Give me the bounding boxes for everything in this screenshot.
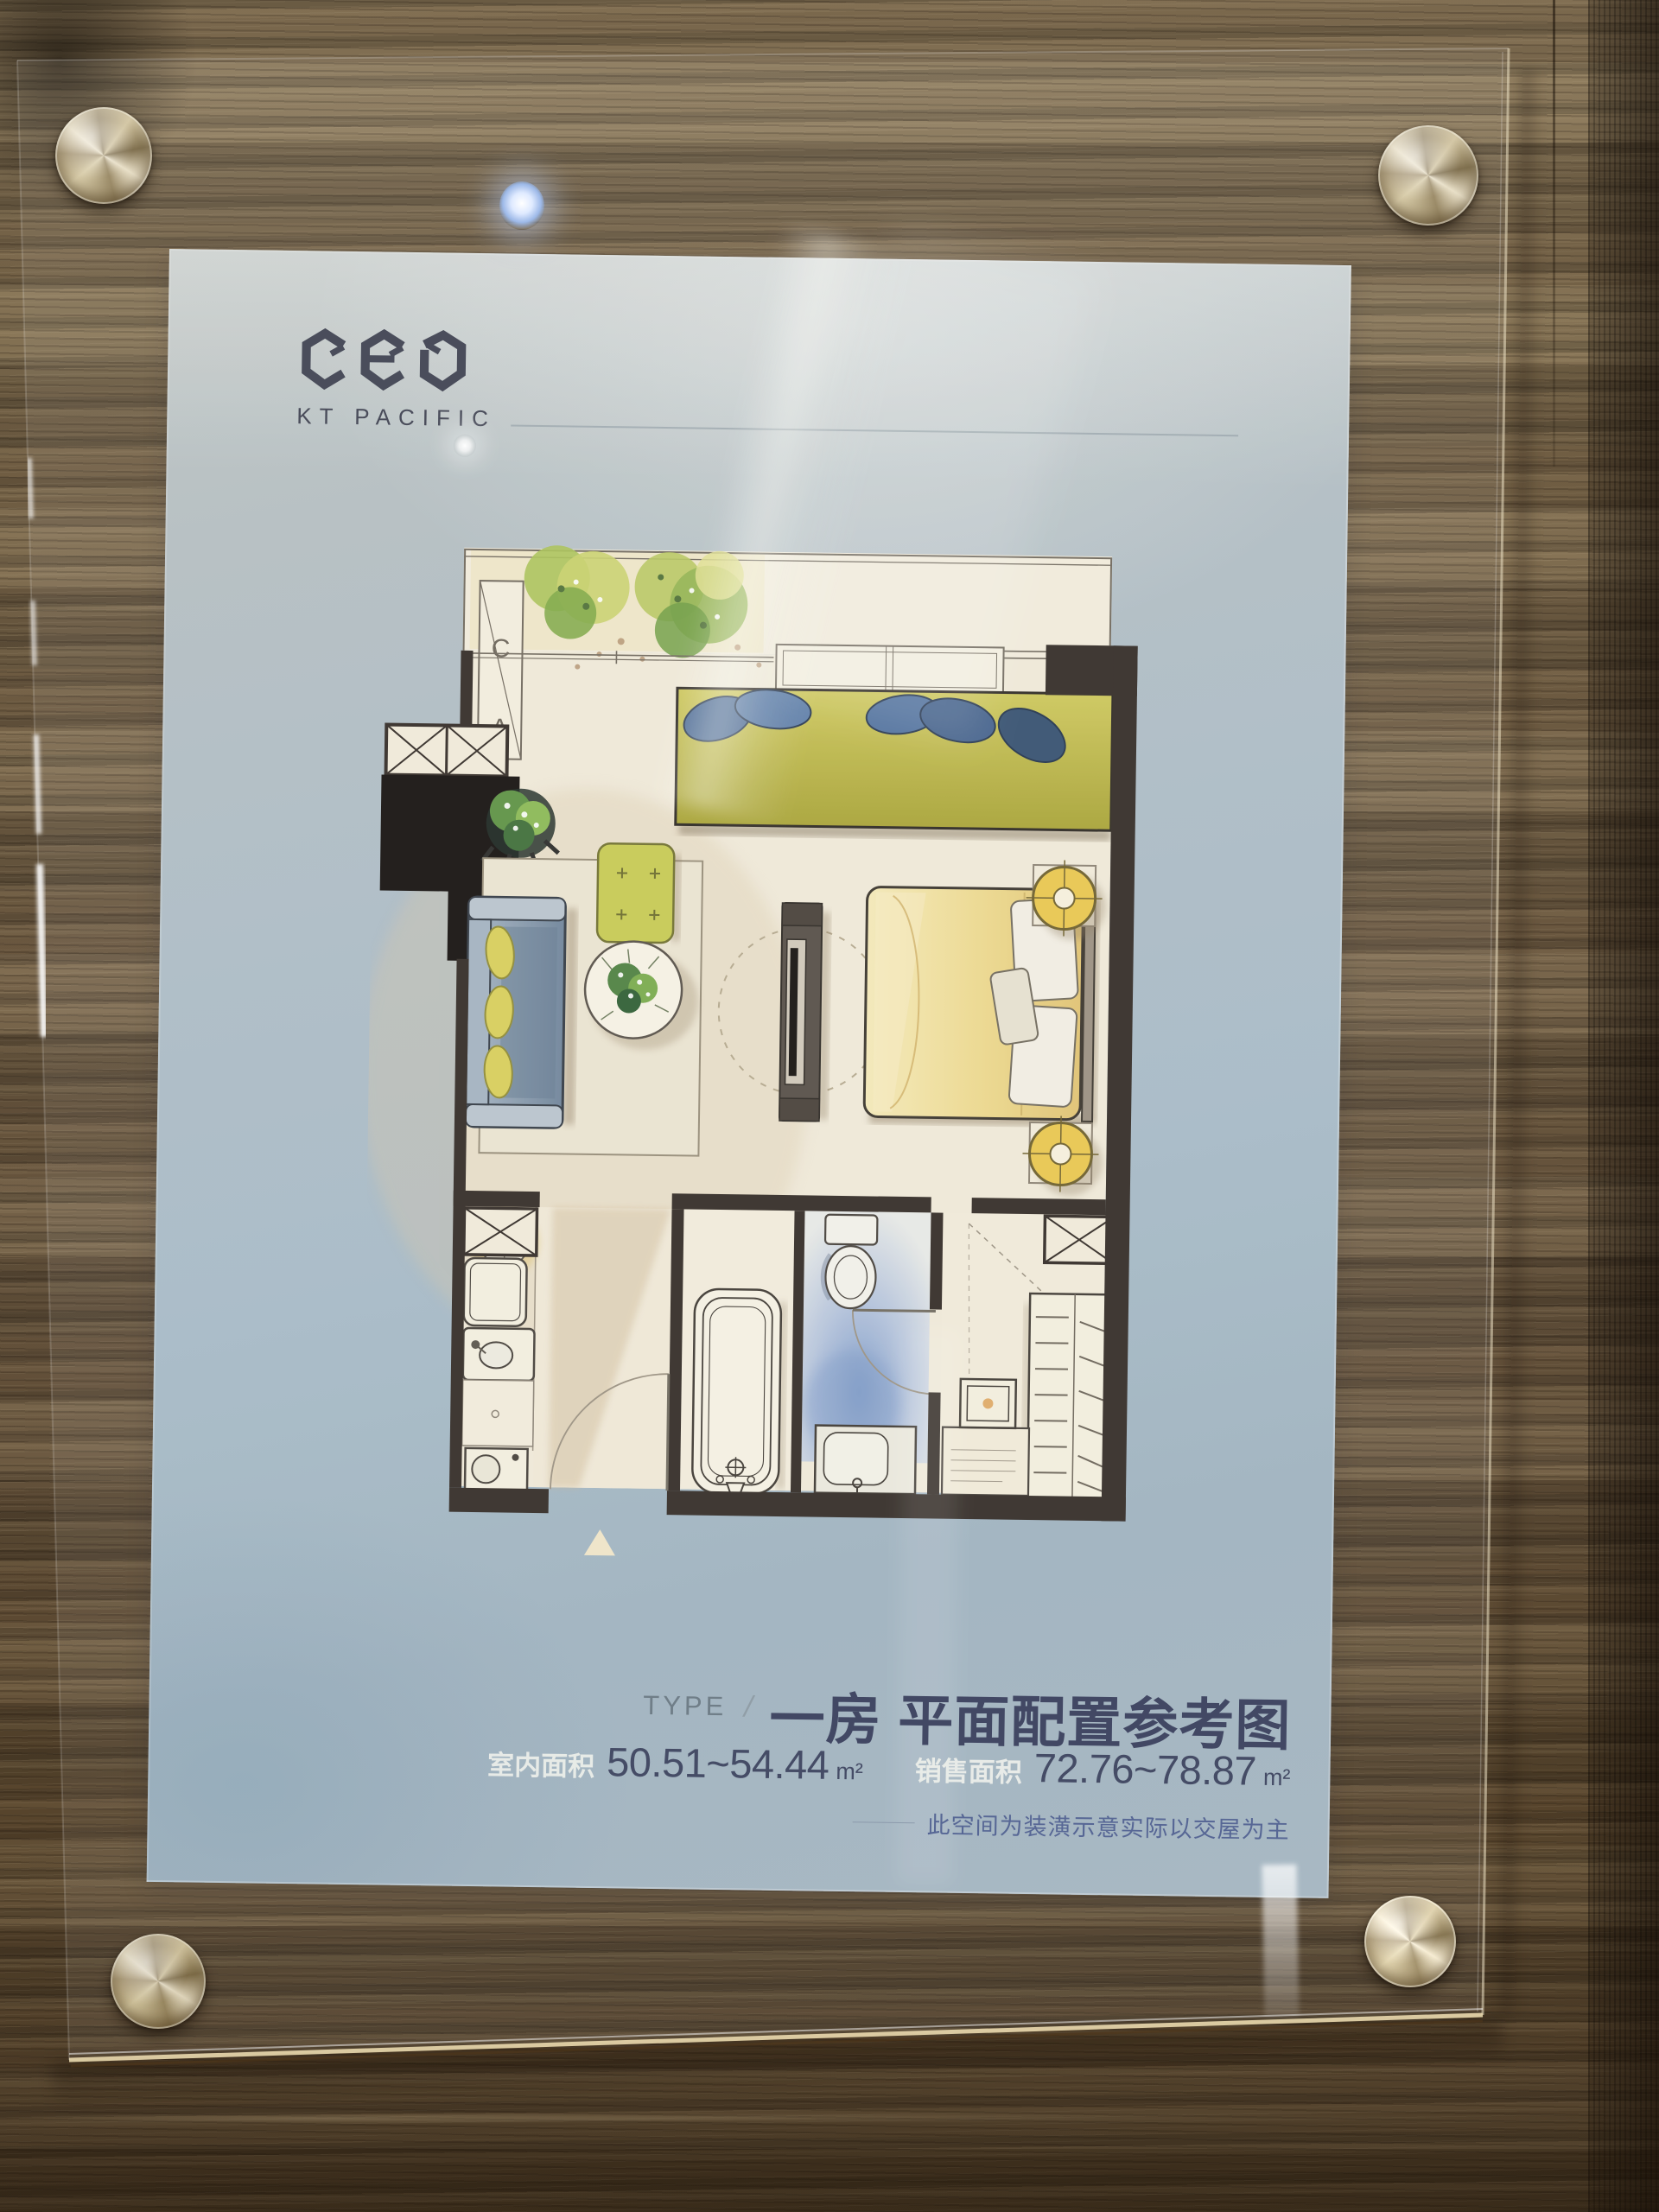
photo-scene: KT PACIFIC	[0, 0, 1659, 2212]
standoff-bolt-bottom-right	[1364, 1896, 1456, 1987]
glass-reflection-streak	[1262, 1865, 1299, 2018]
standoff-bolt-top-right	[1378, 125, 1478, 226]
standoff-bolt-top-left	[55, 107, 152, 204]
light-reflection-dot	[499, 181, 544, 230]
standoff-bolt-bottom-left	[111, 1934, 206, 2029]
acrylic-glass-panel	[0, 0, 1659, 2212]
